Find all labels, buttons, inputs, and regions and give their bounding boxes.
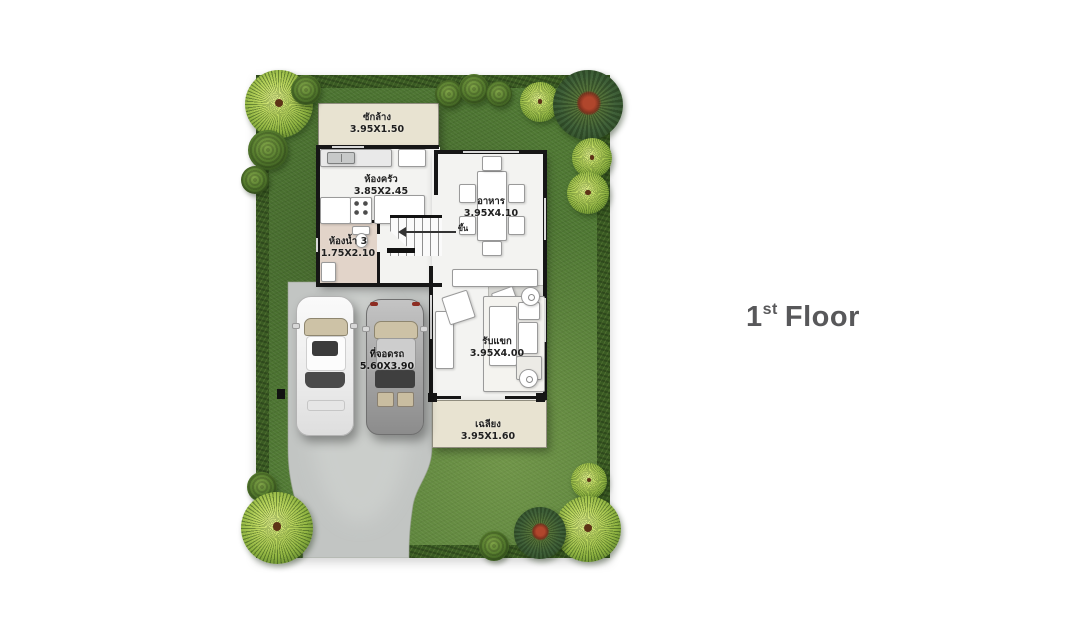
floor-ordinal-suffix: st [763,301,778,318]
room-size: 5.60X3.90 [360,361,414,373]
tree-red-flowers [514,507,566,559]
car-white [296,296,354,436]
tree-red-flowers [553,70,623,140]
car-mirror [420,326,428,332]
room-name: รับแขก [470,336,524,348]
kitchen-counter-bottom [320,197,351,224]
tree [571,463,607,499]
room-size: 3.85X2.45 [354,186,408,198]
room-name: อาหาร [464,196,518,208]
wall-garage-top [316,283,442,287]
porch-pillar-left [428,393,437,402]
bush [459,74,489,104]
room-name: ห้องครัว [354,174,408,186]
car-rear-window [305,372,345,388]
stairs-up-arrow [401,231,456,233]
wall-living-bottom-a [433,396,461,399]
side-table [519,369,538,388]
porch-pillar-right [536,393,545,402]
car-taillight [370,302,378,306]
room-name: ห้องน้ำ 3 [321,236,375,248]
car-seat [397,392,414,407]
stairs-up-text: ขึ้น [458,224,468,233]
bush [241,166,269,194]
car-windshield [374,321,418,339]
window-living-left [430,295,432,339]
room-size: 3.95X4.00 [470,348,524,360]
car-trunk [307,400,345,411]
room-label-kitchen: ห้องครัว 3.85X2.45 [354,174,408,198]
tree [567,172,609,214]
dining-chair [482,156,502,171]
car-mirror [292,323,300,329]
stove [350,197,372,224]
gate-post [277,389,285,399]
floor-plan-canvas: ซักล้าง 3.95X1.50 ห้องครัว 3.85X2.45 ห้อ… [0,0,1080,640]
car-taillight [412,302,420,306]
room-size: 3.95X1.60 [461,431,515,443]
stairs-up-label: ขึ้น [458,224,468,233]
bathroom-vanity [321,262,336,282]
sideboard [452,269,538,287]
wall-bath-right-b [377,252,380,285]
kitchen-sink [327,152,355,164]
bush [479,531,509,561]
car-mirror [350,323,358,329]
car-windshield [304,318,348,336]
car-sunroof [312,341,338,356]
wall-living-bottom-b [505,396,538,399]
window-kitchen [332,146,364,148]
room-name: ที่จอดรถ [360,349,414,361]
room-label-living: รับแขก 3.95X4.00 [470,336,524,360]
bush [248,130,288,170]
window-living-right [544,298,546,342]
floor-title: 1stFloor [746,301,860,334]
window-dining-top [463,151,519,153]
floor-word: Floor [785,301,860,333]
room-label-carport: ที่จอดรถ 5.60X3.90 [360,349,414,373]
bush [486,81,512,107]
room-label-porch: เฉลียง 3.95X1.60 [461,419,515,443]
window-bathroom [316,238,318,252]
floor-number: 1 [746,301,763,333]
staircase-wall [387,248,415,253]
room-label-dining: อาหาร 3.95X4.10 [464,196,518,220]
car-seat [377,392,394,407]
room-size: 3.95X1.50 [350,124,404,136]
room-label-bathroom: ห้องน้ำ 3 1.75X2.10 [321,236,375,260]
side-table [521,287,540,306]
tree [241,492,313,564]
window-dining-right [544,198,546,240]
room-name: เฉลียง [461,419,515,431]
car-mirror [362,326,370,332]
refrigerator [398,149,426,167]
room-size: 1.75X2.10 [321,248,375,260]
room-size: 3.95X4.10 [464,208,518,220]
room-name: ซักล้าง [350,112,404,124]
dining-chair [482,241,502,256]
bush [291,75,321,105]
wall-dining-left [434,150,438,195]
room-label-laundry: ซักล้าง 3.95X1.50 [350,112,404,136]
